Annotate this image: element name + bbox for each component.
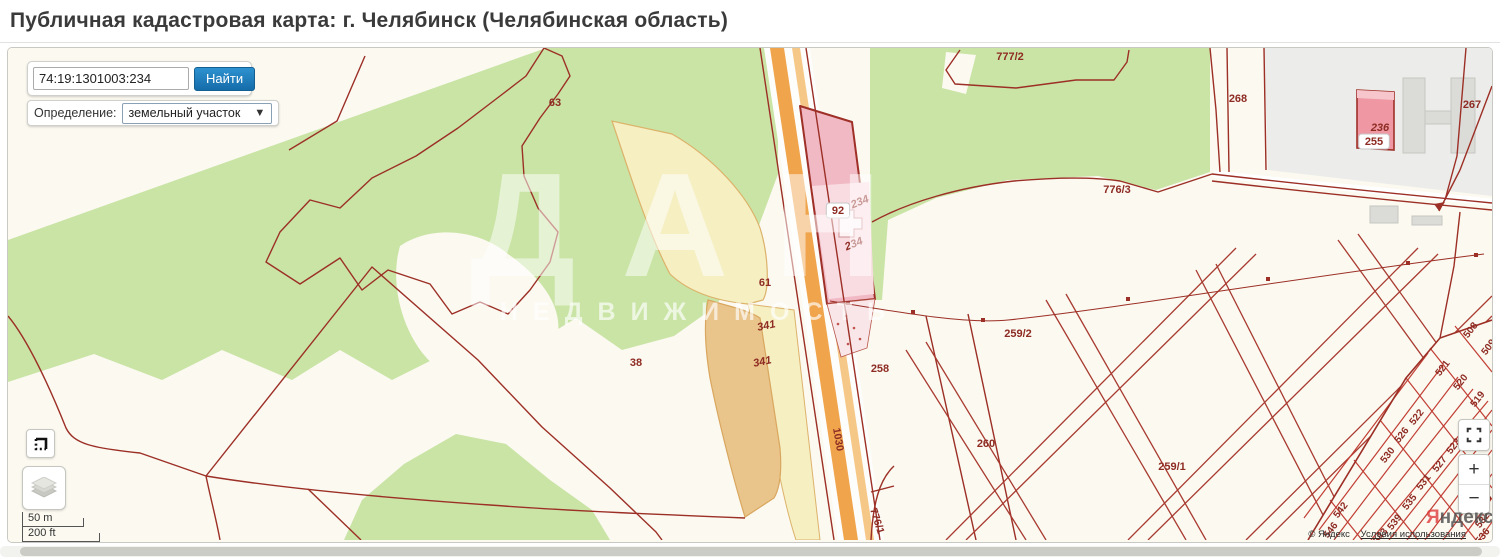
zoom-control: + − — [1458, 454, 1490, 514]
parcel-label: 92 — [832, 205, 844, 217]
measure-icon — [32, 435, 50, 453]
fullscreen-icon — [1465, 426, 1483, 444]
fullscreen-button[interactable] — [1458, 419, 1490, 451]
horizontal-scrollbar — [0, 546, 1500, 557]
cadastral-number-input[interactable] — [33, 67, 189, 90]
page-title: Публичная кадастровая карта: г. Челябинс… — [10, 9, 1488, 33]
parcel-label: 260 — [977, 438, 995, 450]
page-header: Публичная кадастровая карта: г. Челябинс… — [0, 0, 1500, 43]
parcel-label: 63 — [549, 97, 561, 109]
zoom-in-button[interactable]: + — [1459, 455, 1489, 485]
parcel-label: 259/2 — [1004, 328, 1032, 340]
parcel-label: 777/2 — [996, 51, 1024, 63]
parcel-label: 268 — [1229, 93, 1247, 105]
copyright-text: © Яндекс — [1308, 529, 1350, 540]
parcel-label: 236 — [1370, 122, 1390, 134]
scale-imperial: 200 ft — [28, 527, 56, 539]
search-panel: Найти — [27, 61, 252, 96]
parcel-label: 255 — [1365, 136, 1383, 148]
parcel-label: 776/3 — [1103, 184, 1131, 196]
parcel-label: 259/1 — [1158, 461, 1186, 473]
chevron-down-icon: ▼ — [254, 107, 265, 119]
zoom-out-button[interactable]: − — [1459, 485, 1489, 514]
parcel-label: 38 — [630, 357, 642, 369]
page: { "page": { "title": "Публичная кадастро… — [0, 0, 1500, 560]
parcel-label: 258 — [871, 363, 889, 375]
map-attribution: © Яндекс Условия использования — [1308, 529, 1466, 540]
layers-icon — [31, 477, 57, 499]
map-container: 63386134134192234234258259/2260259/1776/… — [7, 47, 1493, 543]
parcel-label: 61 — [759, 277, 771, 289]
definition-label: Определение: — [34, 106, 117, 120]
definition-select[interactable]: земельный участок ▼ — [122, 103, 273, 124]
scale-metric: 50 m — [28, 512, 52, 524]
scale-bar: 50 m 200 ft — [22, 512, 100, 542]
layers-button[interactable] — [22, 466, 66, 510]
terms-of-use-link[interactable]: Условия использования — [1361, 529, 1466, 540]
definition-selected-value: земельный участок — [129, 106, 241, 120]
measure-area-button[interactable] — [26, 429, 55, 458]
definition-panel: Определение: земельный участок ▼ — [27, 100, 279, 126]
find-button[interactable]: Найти — [194, 67, 255, 91]
parcel-label: 267 — [1463, 99, 1481, 111]
scrollbar-thumb[interactable] — [20, 547, 1482, 556]
